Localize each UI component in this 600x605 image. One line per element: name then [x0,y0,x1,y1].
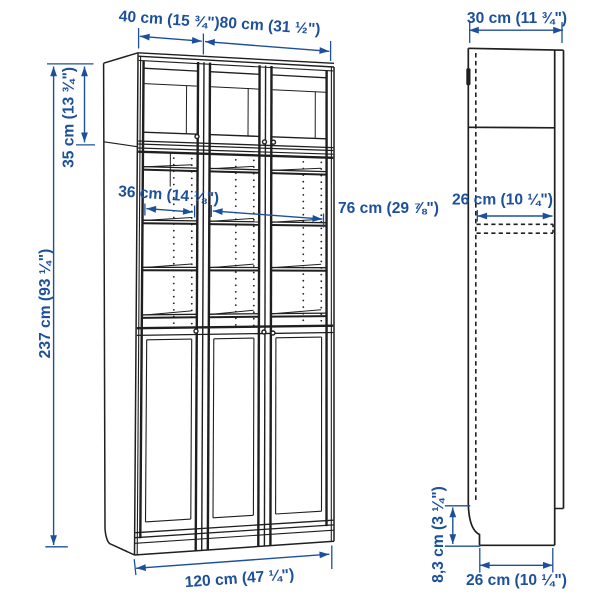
svg-text:26 cm (10 ¼"): 26 cm (10 ¼") [452,192,553,209]
svg-text:76 cm (29 ⅞"): 76 cm (29 ⅞") [338,200,439,217]
svg-text:30 cm (11 ¾"): 30 cm (11 ¾") [467,10,567,27]
svg-text:80 cm (31 ½"): 80 cm (31 ½") [219,14,321,38]
svg-text:36 cm (14 ⅛"): 36 cm (14 ⅛") [118,183,220,207]
svg-text:120 cm (47 ¼"): 120 cm (47 ¼") [184,566,295,591]
svg-text:26 cm (10 ¼"): 26 cm (10 ¼") [466,572,567,589]
svg-text:35 cm (13 ¾"): 35 cm (13 ¾") [61,67,78,168]
svg-text:40 cm (15 ¾"): 40 cm (15 ¾") [118,8,220,32]
svg-text:237 cm (93 ¼"): 237 cm (93 ¼") [37,249,54,359]
svg-text:8,3 cm (3 ¼"): 8,3 cm (3 ¼") [430,486,447,583]
